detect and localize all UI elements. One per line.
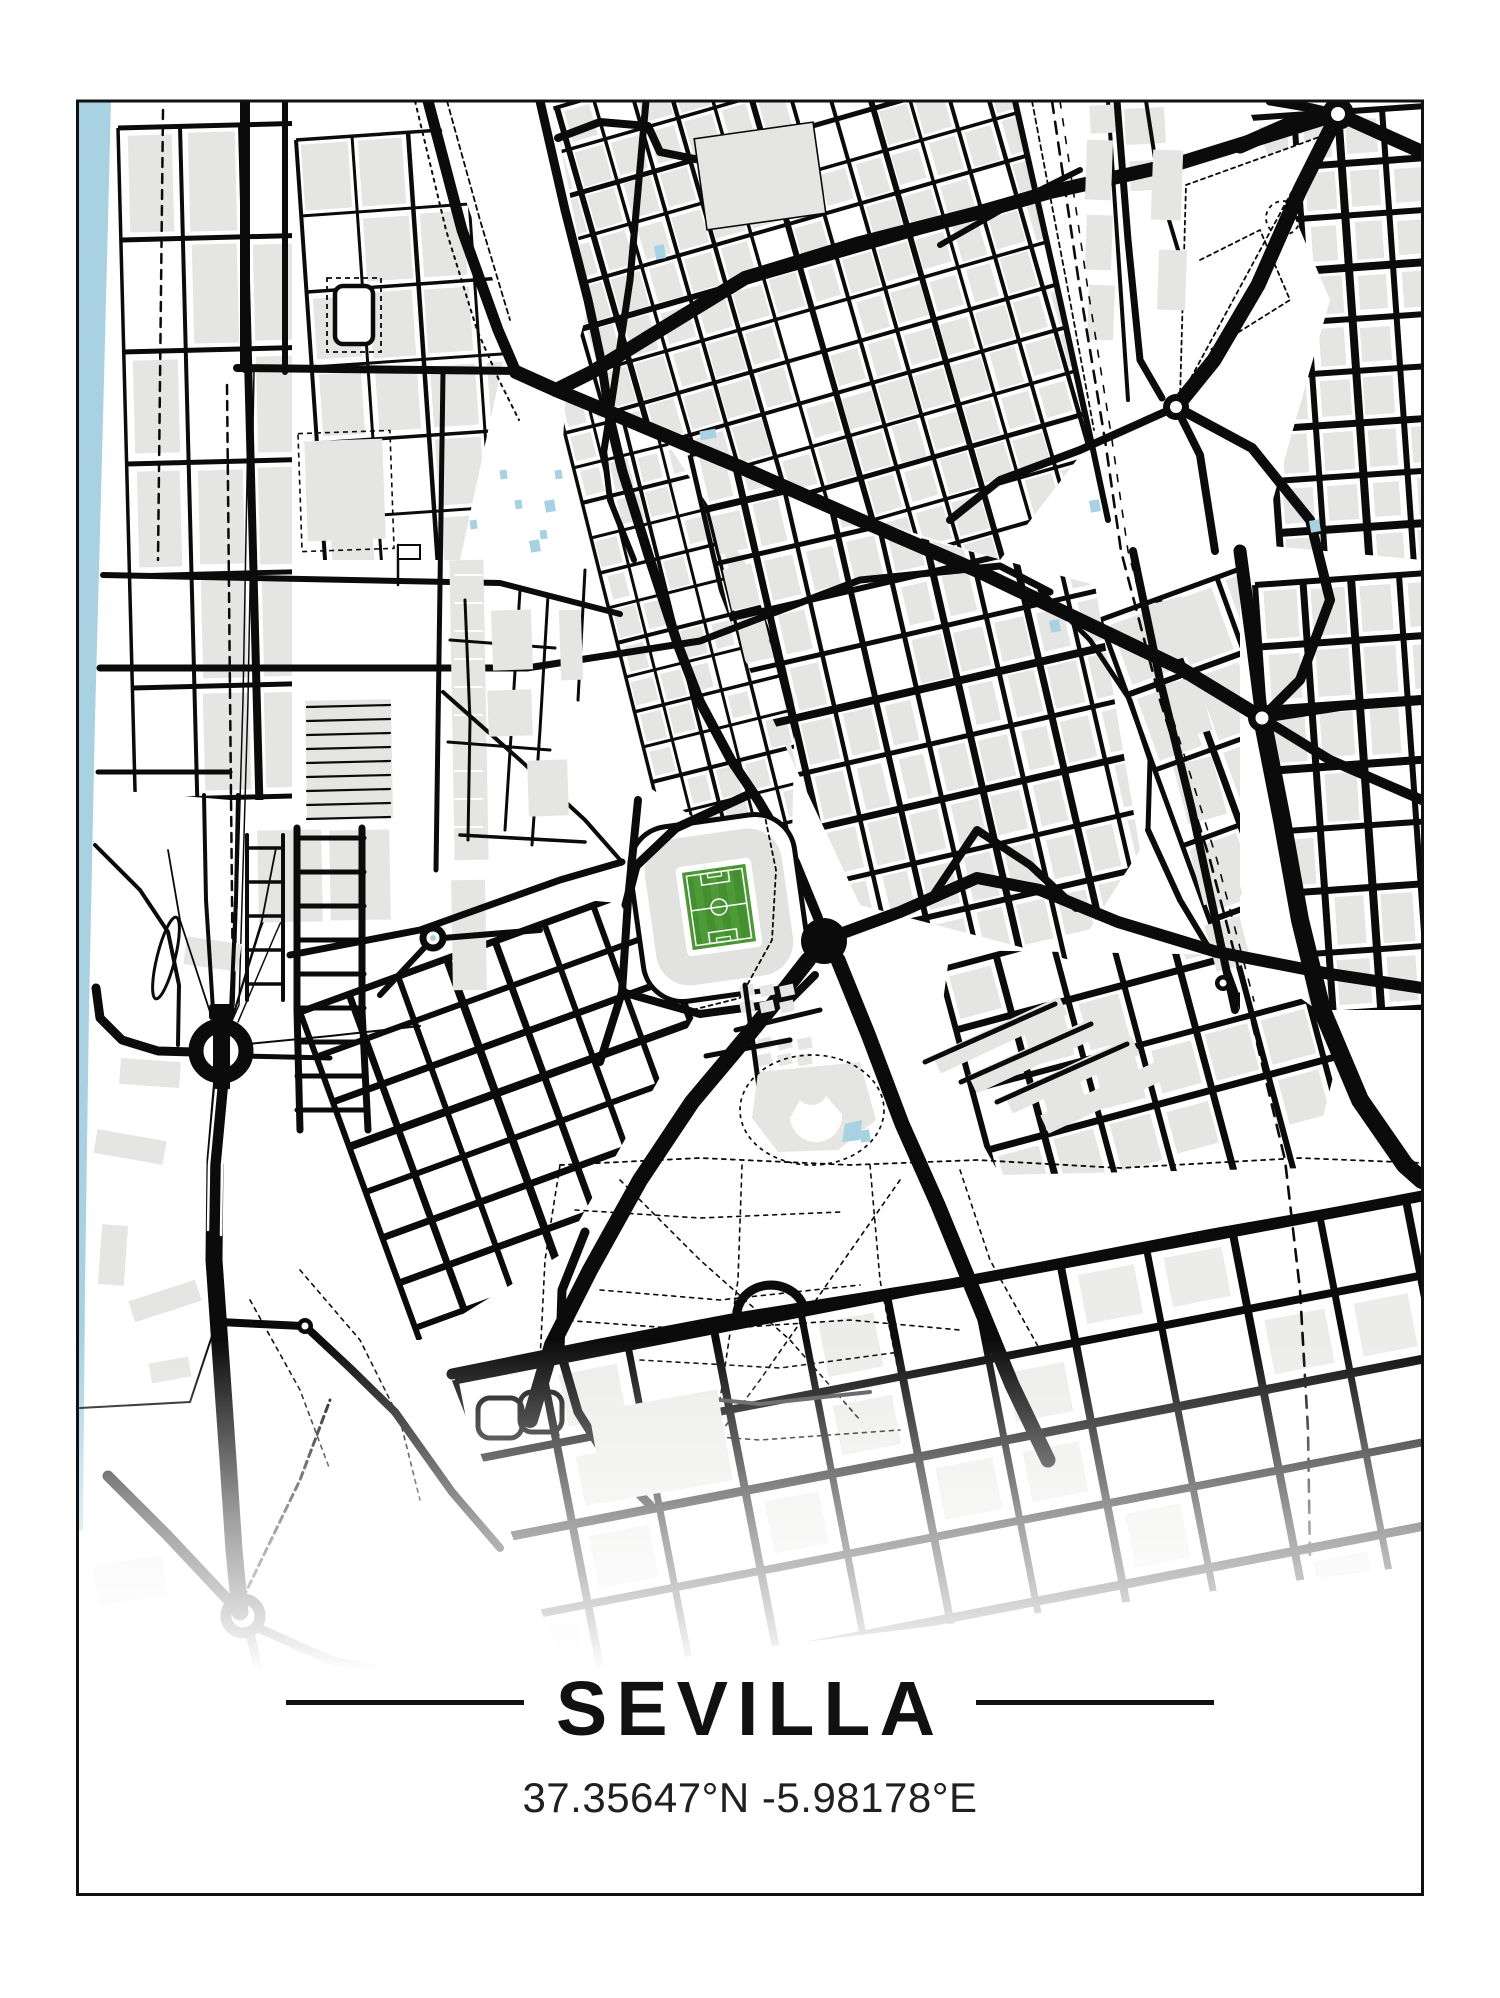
svg-text:SEVILLA: SEVILLA <box>556 1666 944 1752</box>
svg-text:37.35647°N -5.98178°E: 37.35647°N -5.98178°E <box>522 1774 977 1821</box>
